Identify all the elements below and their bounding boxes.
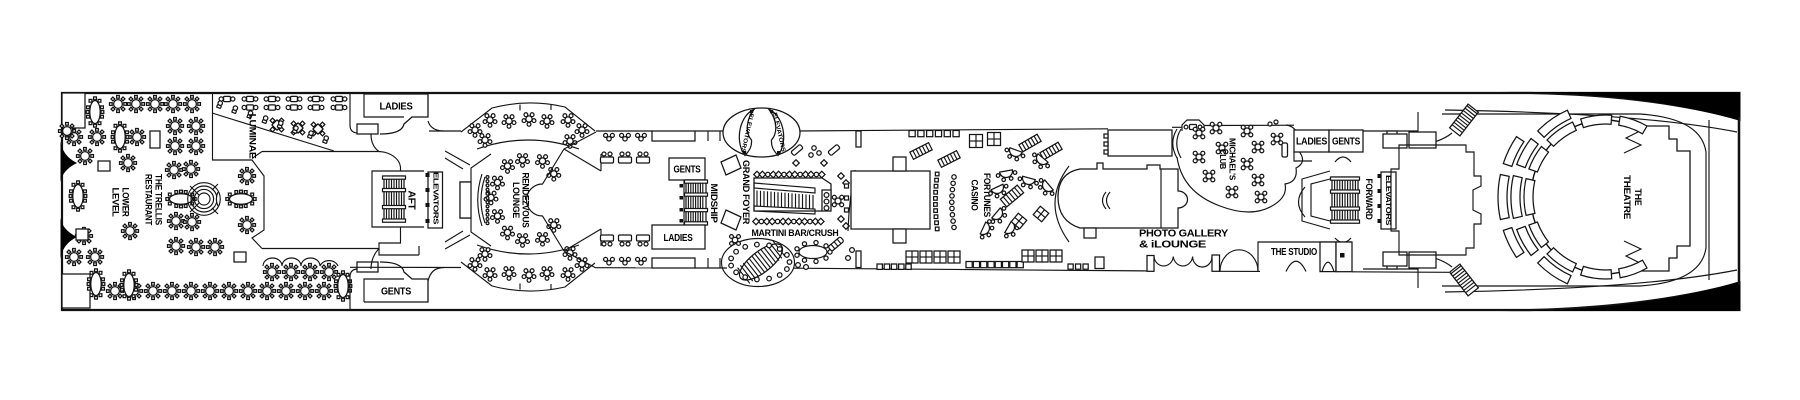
svg-text:LADIES: LADIES [664, 233, 694, 244]
svg-text:LUMINAE: LUMINAE [247, 114, 258, 159]
svg-text:PHOTO GALLERY: PHOTO GALLERY [1139, 229, 1229, 240]
svg-text:FORWARD: FORWARD [1364, 179, 1374, 220]
svg-text:ELEVATORS: ELEVATORS [432, 172, 439, 225]
svg-text:LADIES: LADIES [380, 101, 413, 113]
svg-text:GENTS: GENTS [674, 165, 702, 176]
svg-text:GENTS: GENTS [381, 286, 411, 298]
svg-text:& iLOUNGE: & iLOUNGE [1139, 240, 1207, 251]
svg-text:THE TRELLISRESTAURANT: THE TRELLISRESTAURANT [144, 174, 164, 226]
svg-text:LOWERLEVEL: LOWERLEVEL [111, 188, 131, 218]
svg-text:AFT: AFT [406, 191, 417, 210]
svg-text:ELEVATORS: ELEVATORS [1384, 175, 1391, 226]
svg-text:GRAND FOYER: GRAND FOYER [741, 160, 751, 225]
svg-text:LADIES: LADIES [1296, 137, 1328, 148]
svg-text:MIDSHIP: MIDSHIP [709, 184, 719, 223]
svg-text:MARTINI BAR/CRUSH: MARTINI BAR/CRUSH [752, 228, 839, 239]
svg-text:THE STUDIO: THE STUDIO [1271, 247, 1318, 258]
svg-text:GENTS: GENTS [1332, 137, 1361, 148]
